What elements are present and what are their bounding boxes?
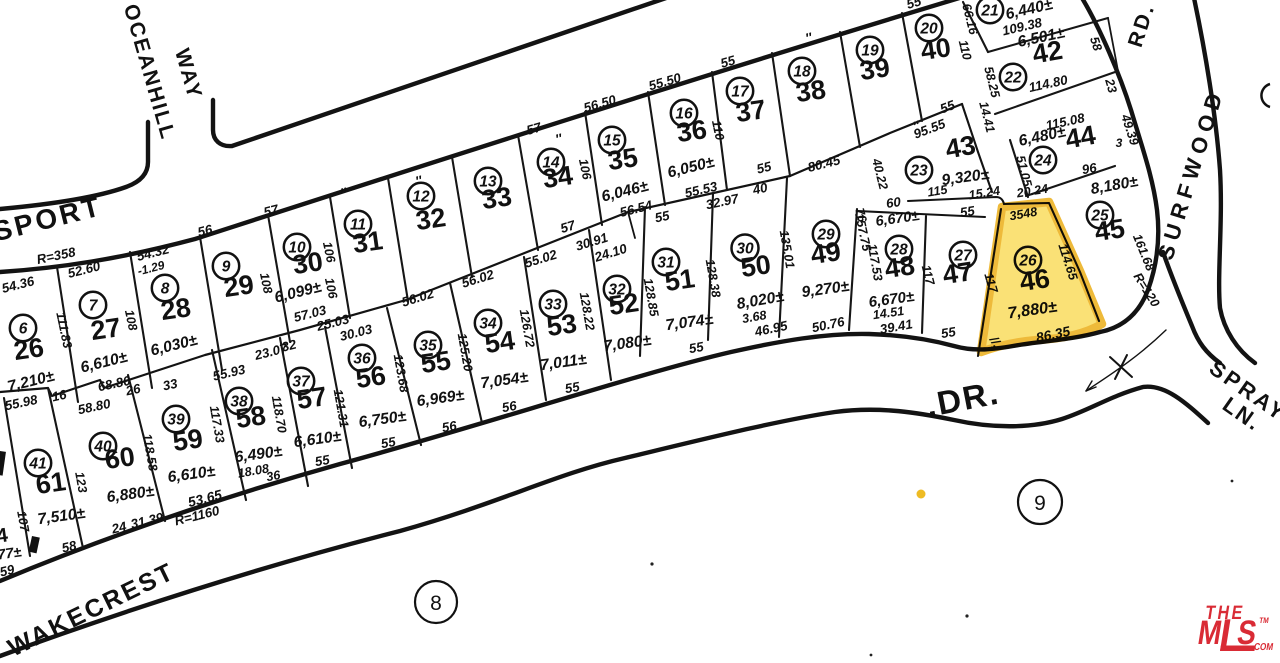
svg-text:27: 27 xyxy=(89,312,123,346)
svg-text:30: 30 xyxy=(291,246,325,280)
svg-text:50: 50 xyxy=(739,249,773,283)
svg-text:35: 35 xyxy=(606,142,640,176)
svg-text:32: 32 xyxy=(414,202,448,236)
svg-text:33: 33 xyxy=(480,181,514,215)
svg-text:28: 28 xyxy=(159,292,193,326)
svg-text:51: 51 xyxy=(663,263,697,297)
svg-text:59: 59 xyxy=(171,423,205,457)
svg-text:47: 47 xyxy=(941,256,975,290)
svg-text:55: 55 xyxy=(959,203,976,220)
svg-text:.COM: .COM xyxy=(1251,641,1274,652)
svg-text:TM: TM xyxy=(1259,615,1270,625)
svg-text:40: 40 xyxy=(919,32,953,66)
svg-text:12: 12 xyxy=(412,189,430,206)
svg-text:45: 45 xyxy=(1093,213,1127,247)
svg-text:38: 38 xyxy=(794,74,828,108)
svg-text:24: 24 xyxy=(1033,153,1052,170)
svg-text:77±: 77± xyxy=(0,544,22,563)
svg-text:31: 31 xyxy=(351,225,385,259)
svg-text:52: 52 xyxy=(607,287,641,321)
svg-text:58: 58 xyxy=(234,400,268,434)
svg-text:60: 60 xyxy=(103,441,137,475)
svg-text:39: 39 xyxy=(858,52,892,86)
svg-text:29: 29 xyxy=(222,269,256,303)
svg-text:54: 54 xyxy=(483,325,517,359)
svg-text:60: 60 xyxy=(885,194,902,211)
svg-text:43: 43 xyxy=(943,130,978,165)
svg-text:53: 53 xyxy=(545,308,579,342)
svg-text:55: 55 xyxy=(419,345,453,379)
svg-text:7: 7 xyxy=(89,298,99,315)
svg-text:49: 49 xyxy=(809,236,843,270)
svg-text:61: 61 xyxy=(34,466,68,500)
svg-text:3: 3 xyxy=(1116,136,1123,150)
svg-text:26: 26 xyxy=(12,332,46,366)
svg-text:23: 23 xyxy=(909,163,928,180)
svg-text:21: 21 xyxy=(980,3,998,20)
svg-text:48: 48 xyxy=(883,250,917,284)
svg-text:57: 57 xyxy=(295,381,329,415)
svg-text:22: 22 xyxy=(1003,70,1022,87)
svg-text:55: 55 xyxy=(940,324,957,341)
svg-text:36: 36 xyxy=(675,114,709,148)
svg-text:34: 34 xyxy=(541,160,575,194)
svg-text:56: 56 xyxy=(354,360,388,394)
svg-text:37: 37 xyxy=(734,94,768,128)
svg-text:8: 8 xyxy=(430,592,442,615)
svg-text:9: 9 xyxy=(1034,492,1046,515)
